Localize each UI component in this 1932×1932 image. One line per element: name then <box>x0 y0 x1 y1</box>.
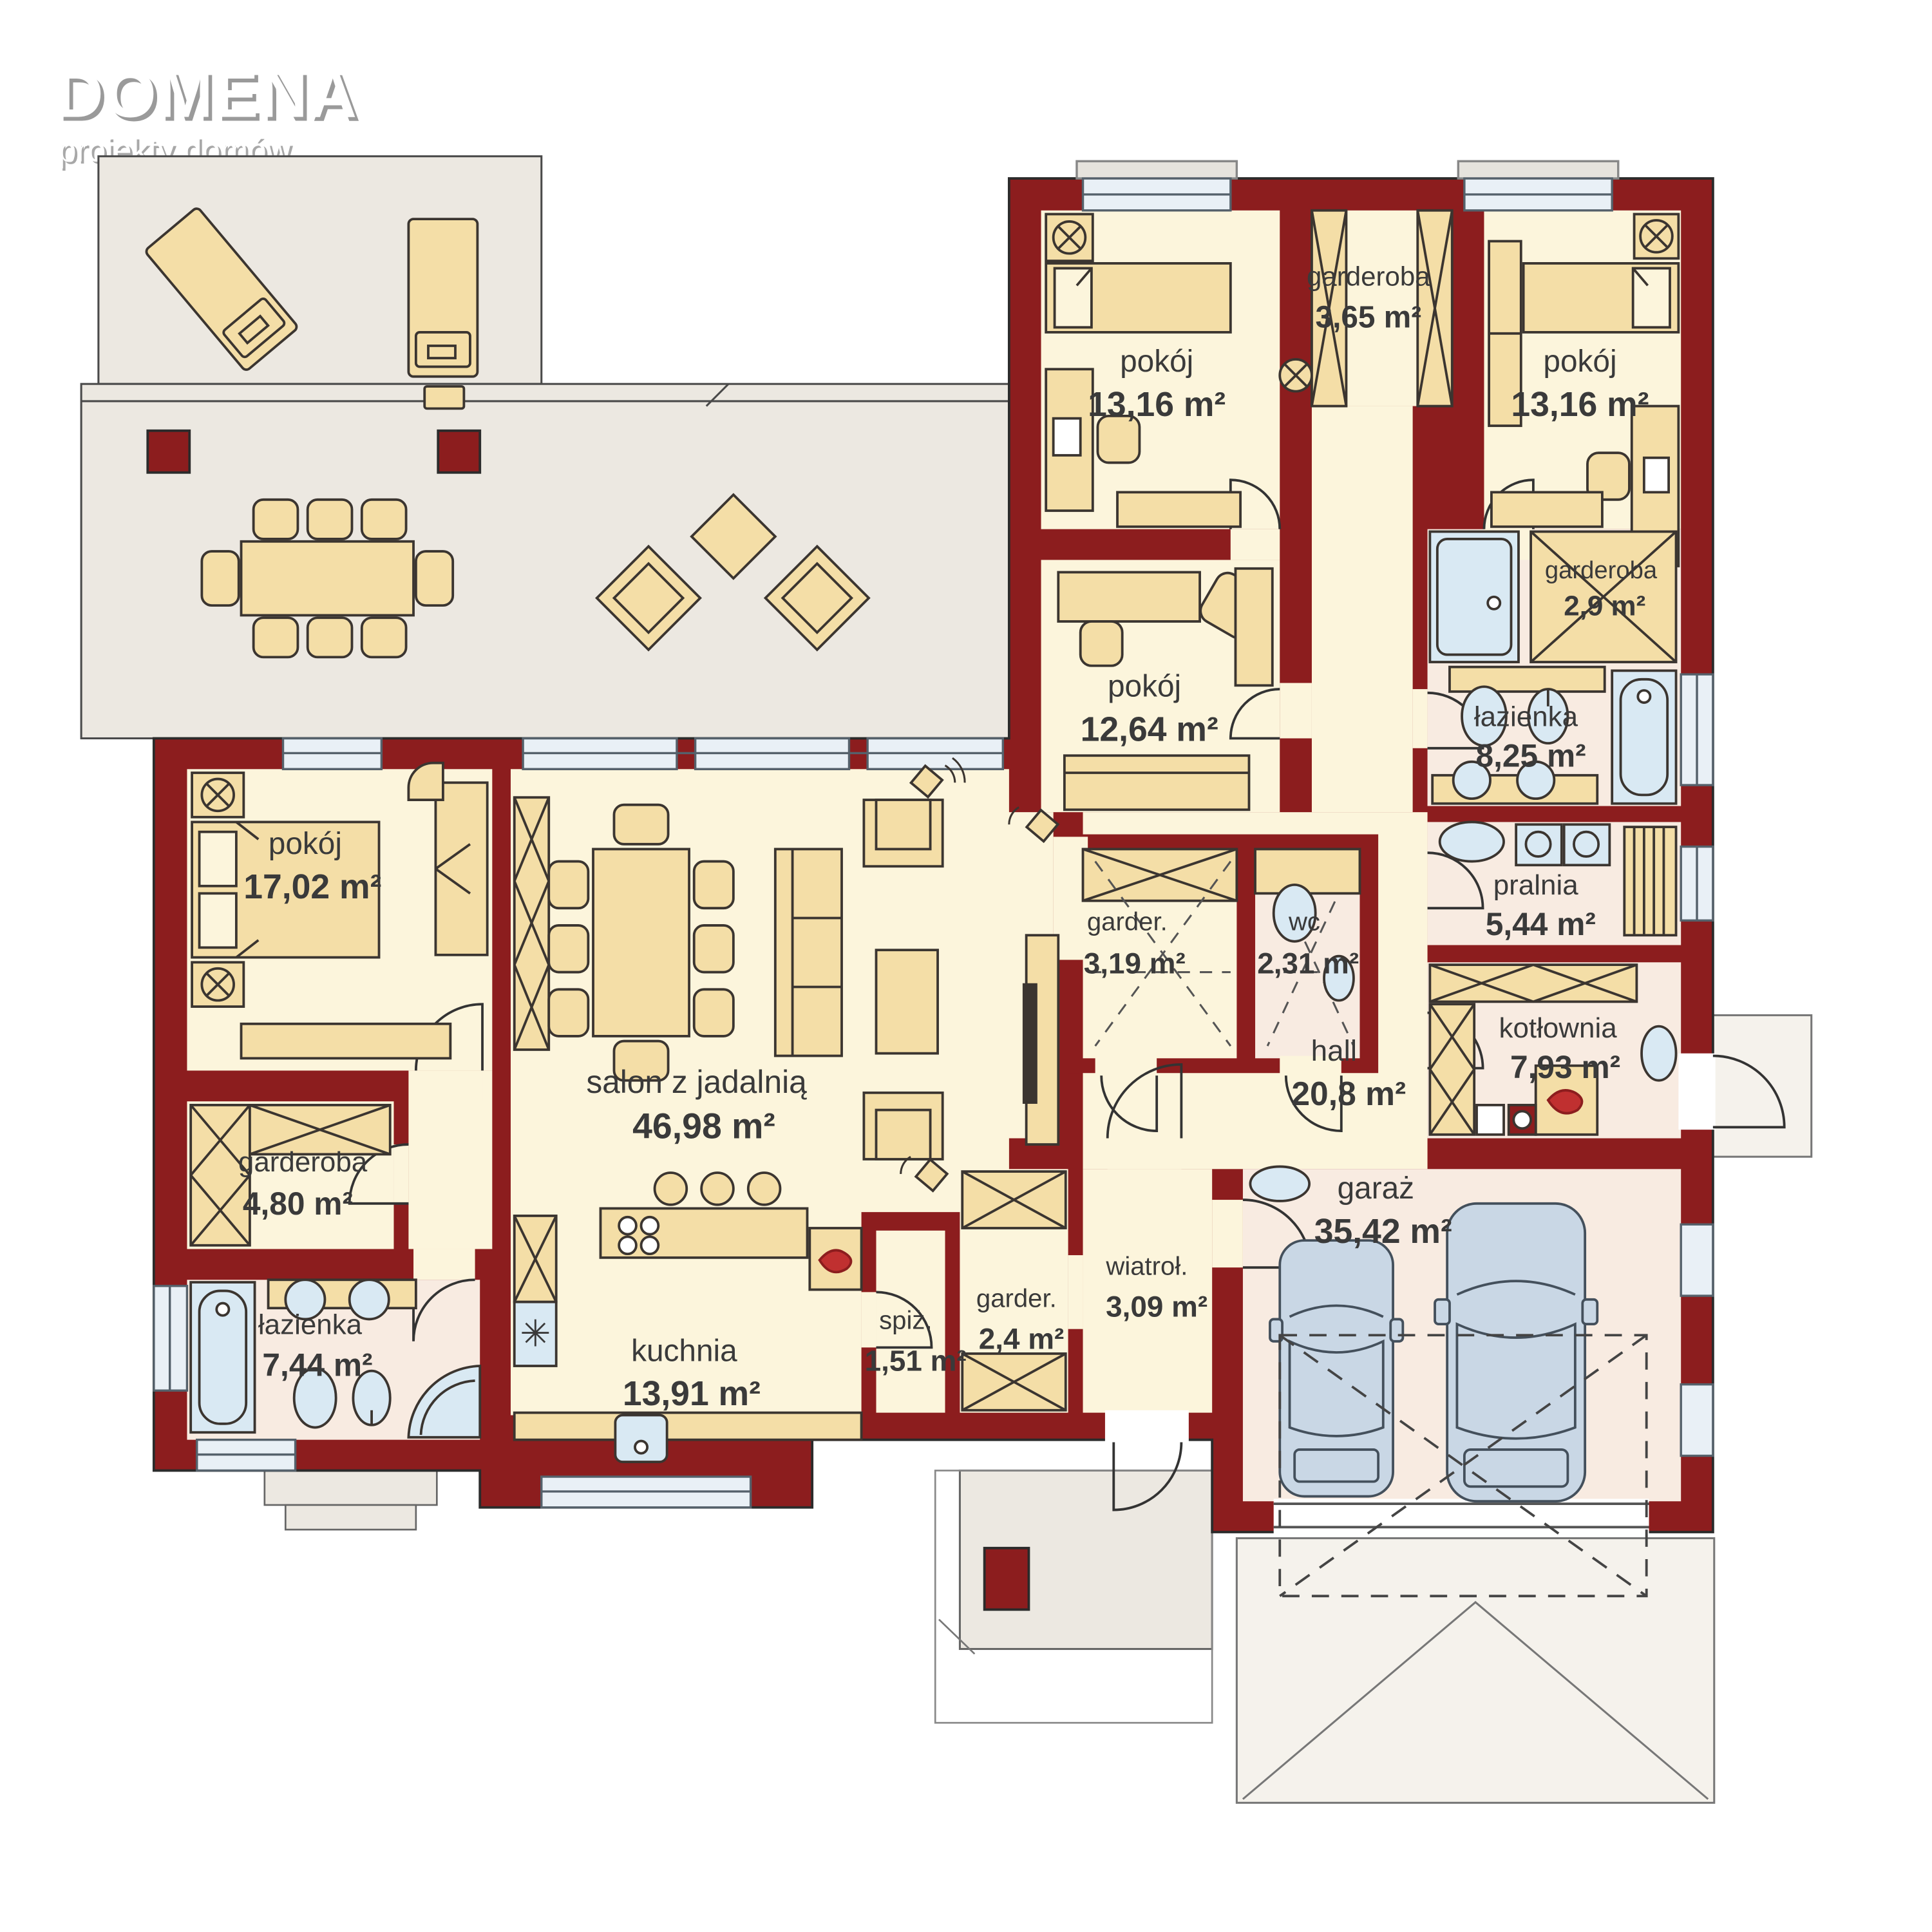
room-area-pokoj-17: 17,02 m² <box>243 868 381 906</box>
room-area-garder-24: 2,4 m² <box>979 1321 1065 1355</box>
room-label-lazienka-825: łazienka <box>1474 701 1578 732</box>
kitchen-sink-icon <box>615 1415 667 1462</box>
room-label-garder-24: garder. <box>976 1283 1057 1312</box>
dresser-icon <box>1492 492 1602 527</box>
sink-icon <box>1642 1027 1676 1081</box>
terrace-column <box>438 431 480 473</box>
room-label-pokoj-1: pokój <box>1120 345 1193 379</box>
chair-icon <box>694 925 734 972</box>
desk-icon <box>1058 573 1200 621</box>
chair-icon <box>549 989 588 1036</box>
room-label-lazienka-744: łazienka <box>258 1309 363 1340</box>
room-label-pokoj-17: pokój <box>269 827 342 861</box>
dresser-icon <box>241 1024 451 1059</box>
chair-icon <box>1081 621 1122 666</box>
floor-plan-page: DOMENA DOMENA projekty domów projekty do… <box>0 0 1932 1932</box>
room-label-pralnia: pralnia <box>1493 869 1578 901</box>
bar-stool-icon <box>701 1173 734 1205</box>
room-area-garderoba-480: 4,80 m² <box>243 1186 353 1222</box>
room-label-salon: salon z jadalnią <box>586 1064 807 1100</box>
room-label-kotlownia: kotłownia <box>1499 1012 1618 1044</box>
tv-icon <box>1024 985 1036 1103</box>
front-door-opening <box>1105 1410 1189 1443</box>
sink-icon <box>1250 1166 1309 1201</box>
bar-stool-icon <box>655 1173 687 1205</box>
brand-logo: DOMENA DOMENA projekty domów projekty do… <box>55 57 362 171</box>
fridge-symbol: ✳ <box>520 1313 551 1354</box>
terrace-column <box>147 431 189 473</box>
room-label-garderoba-365: garderoba <box>1307 261 1430 291</box>
room-area-pokoj-1: 13,16 m² <box>1088 386 1226 424</box>
room-label-hall: hall <box>1311 1034 1357 1067</box>
back-steps <box>265 1470 437 1505</box>
room-area-pokoj-2: 13,16 m² <box>1511 386 1649 424</box>
room-area-hall: 20,8 m² <box>1291 1075 1406 1112</box>
room-area-lazienka-825: 8,25 m² <box>1475 737 1586 773</box>
drying-rack-icon <box>1624 827 1676 935</box>
room-area-garderoba-365: 3,65 m² <box>1316 300 1422 334</box>
chair-icon <box>694 862 734 909</box>
floor-plan-drawing: DOMENA DOMENA projekty domów projekty do… <box>0 0 1932 1932</box>
room-label-garderoba-29: garderoba <box>1545 556 1658 584</box>
side-landing <box>1713 1015 1812 1157</box>
sofa-icon <box>775 849 842 1056</box>
window-icon <box>1681 1385 1713 1456</box>
room-label-pokoj-3: pokój <box>1108 670 1181 704</box>
car-icon <box>1270 1240 1403 1496</box>
room-area-garaz: 35,42 m² <box>1314 1213 1452 1251</box>
room-label-pokoj-2: pokój <box>1543 345 1616 379</box>
coffee-table-icon <box>876 950 938 1054</box>
bar-stool-icon <box>748 1173 781 1205</box>
room-area-pokoj-3: 12,64 m² <box>1081 710 1218 748</box>
corridor-floor <box>1312 406 1413 813</box>
room-area-pralnia: 5,44 m² <box>1486 906 1596 942</box>
car-icon <box>1435 1204 1597 1501</box>
window-icon <box>1681 1224 1713 1296</box>
room-label-garder-319: garder. <box>1087 907 1168 936</box>
dining-table-icon <box>593 849 689 1036</box>
shelf-icon <box>1235 569 1272 686</box>
room-label-spiz: spiż. <box>879 1306 932 1335</box>
porch-column <box>985 1548 1029 1610</box>
room-label-wiatrolap: wiatroł. <box>1105 1252 1188 1281</box>
room-label-kuchnia: kuchnia <box>631 1334 737 1368</box>
dresser-icon <box>1117 492 1240 527</box>
room-label-wc: wc <box>1288 907 1320 936</box>
chair-icon <box>549 862 588 909</box>
room-label-garaz: garaż <box>1338 1171 1414 1206</box>
chair-icon <box>694 989 734 1036</box>
sofa-icon <box>1065 755 1249 810</box>
room-area-spiz: 1,51 m² <box>865 1344 967 1378</box>
room-label-garderoba-480: garderoba <box>238 1146 368 1178</box>
room-area-salon: 46,98 m² <box>632 1106 775 1146</box>
wardrobe-icon <box>435 782 487 955</box>
room-area-garder-319: 3,19 m² <box>1084 946 1186 980</box>
chair-icon <box>614 805 668 844</box>
boiler-room-door-opening <box>1678 1054 1715 1130</box>
room-area-kuchnia: 13,91 m² <box>623 1375 761 1413</box>
room-area-garderoba-29: 2,9 m² <box>1564 590 1645 621</box>
brand-name: DOMENA <box>55 57 358 131</box>
room-area-lazienka-744: 7,44 m² <box>262 1347 372 1383</box>
room-area-wc: 2,31 m² <box>1257 946 1359 980</box>
chair-icon <box>549 925 588 972</box>
room-area-kotlownia: 7,93 m² <box>1510 1049 1620 1085</box>
sink-icon <box>1440 822 1504 861</box>
room-area-wiatrolap: 3,09 m² <box>1106 1290 1207 1323</box>
